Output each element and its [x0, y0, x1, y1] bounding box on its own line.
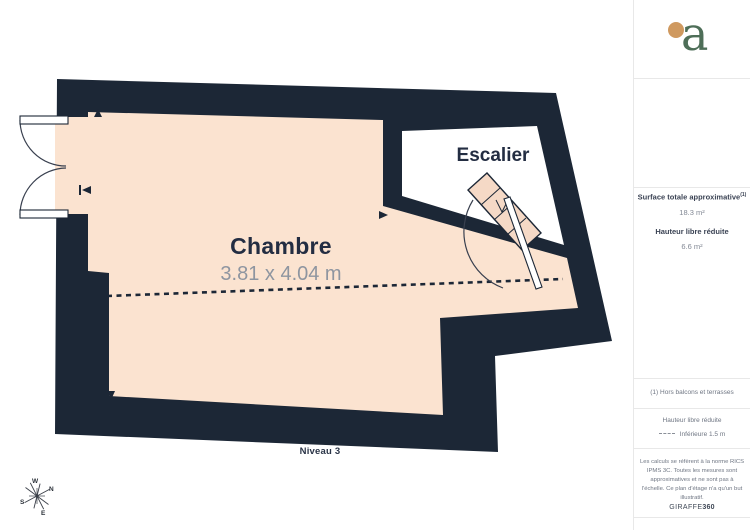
footnote: (1) Hors balcons et terrasses: [634, 389, 750, 396]
info-panel: a Surface totale approximative(1) 18.3 m…: [633, 0, 750, 530]
brand-name: GIRAFFE360: [634, 504, 750, 511]
logo-letter: a: [681, 11, 708, 57]
disclaimer-line: approximatives et ne sont pas à: [634, 476, 750, 485]
surface-total-label: Surface totale approximative(1): [634, 192, 750, 202]
level-label: Niveau 3: [300, 446, 341, 457]
disclaimer-line: illustratif.: [634, 494, 750, 503]
legend-title: Hauteur libre réduite: [634, 417, 750, 424]
room-label: Chambre 3.81 x 4.04 m: [220, 233, 341, 286]
divider: [634, 408, 750, 409]
disclaimer-line: Les calculs se réfèrent à la norme RICS: [634, 458, 750, 467]
compass-e: E: [41, 510, 46, 517]
compass-n: N: [49, 486, 54, 493]
divider: [634, 187, 750, 188]
disclaimer-line: IPMS 3C. Toutes les mesures sont: [634, 467, 750, 476]
divider: [634, 378, 750, 379]
compass-w: W: [32, 478, 39, 485]
reduced-height-value: 6.6 m²: [634, 242, 750, 251]
legend-item: Inférieure 1.5 m: [680, 431, 726, 438]
compass-rose: W N S E: [20, 478, 54, 517]
footnote-ref: (1): [740, 192, 746, 198]
legend-row: Inférieure 1.5 m: [634, 431, 750, 438]
compass-s: S: [20, 499, 25, 506]
disclaimer-line: l'échelle. Ce plan d'étage n'a qu'un but: [634, 485, 750, 494]
floorplan-page: W N S E Chambre 3.81 x 4.04 m Escalier N…: [0, 0, 750, 530]
divider: [634, 448, 750, 449]
room-dimensions: 3.81 x 4.04 m: [220, 263, 341, 286]
divider: [634, 78, 750, 79]
stairs-label: Escalier: [457, 145, 530, 167]
divider: [634, 517, 750, 518]
room-name: Chambre: [220, 233, 341, 260]
dashed-line-sample-icon: [659, 433, 675, 434]
reduced-height-label: Hauteur libre réduite: [634, 227, 750, 236]
surface-total-value: 18.3 m²: [634, 208, 750, 217]
